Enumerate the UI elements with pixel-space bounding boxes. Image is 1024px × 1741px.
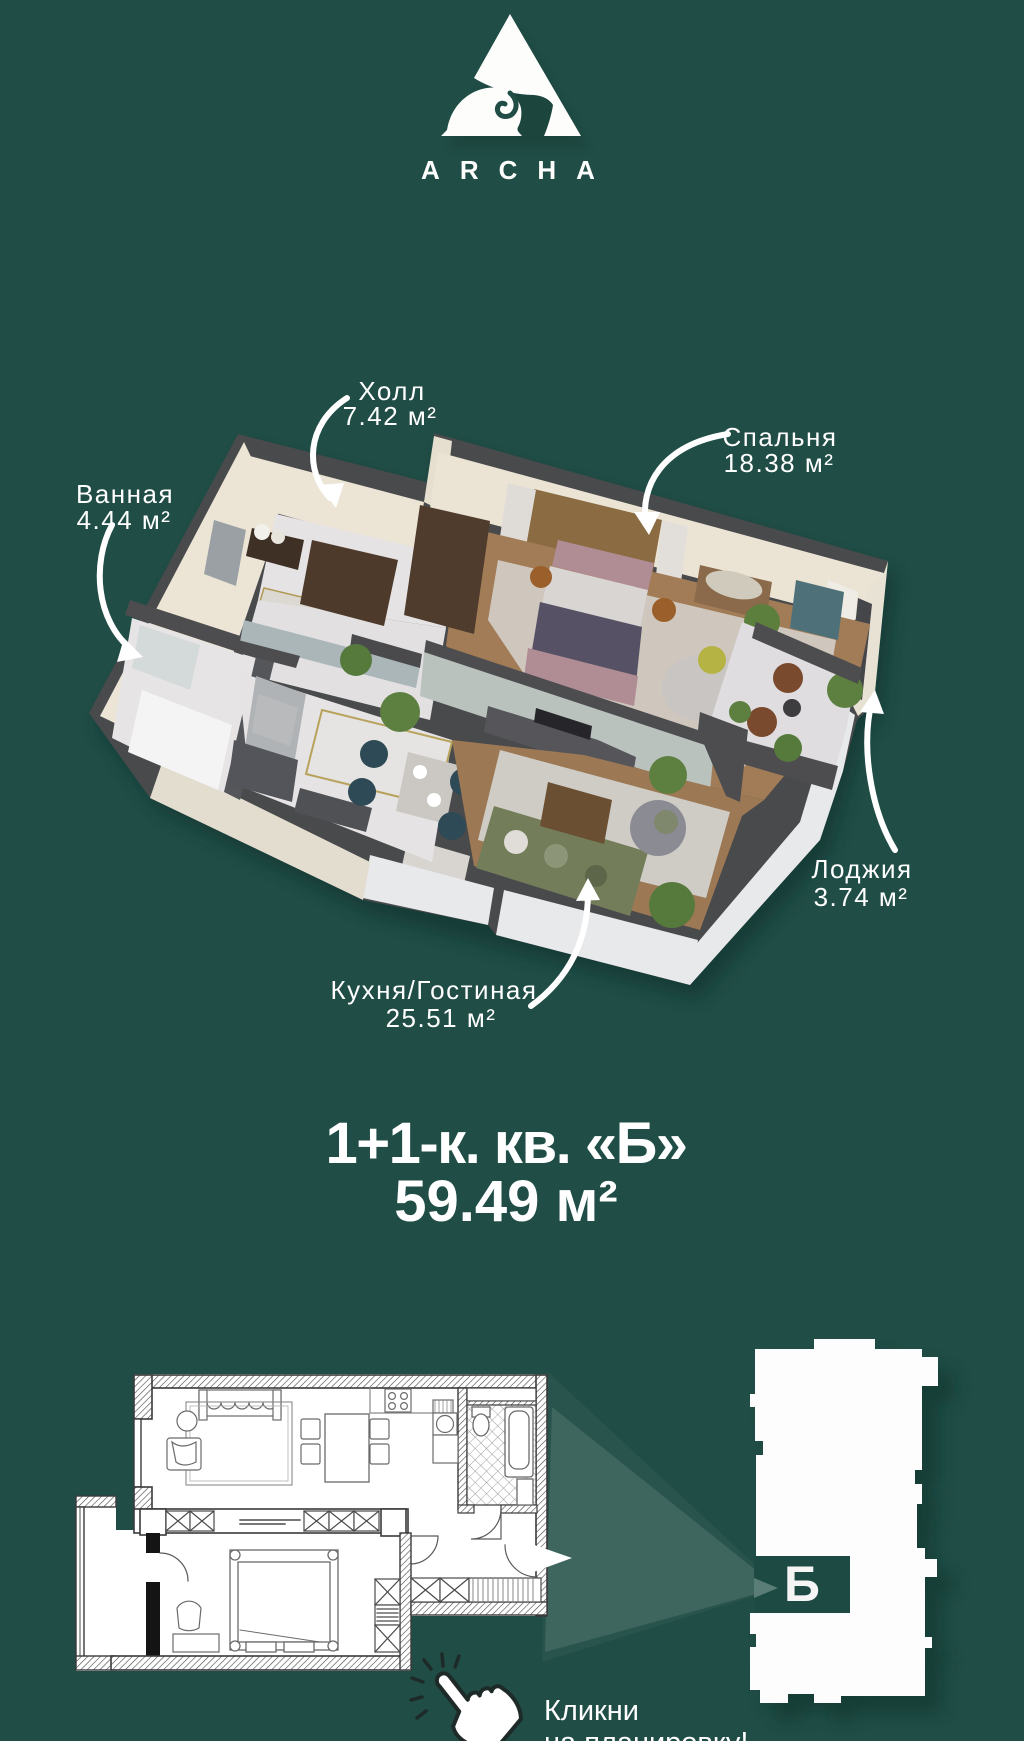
svg-text:59.49 м²: 59.49 м² xyxy=(394,1169,617,1234)
svg-text:1+1-к. кв. «Б»: 1+1-к. кв. «Б» xyxy=(325,1111,686,1176)
svg-text:ARCHA: ARCHA xyxy=(421,155,615,185)
svg-text:на планировку!: на планировку! xyxy=(544,1727,748,1741)
svg-text:Кухня/Гостиная: Кухня/Гостиная xyxy=(331,975,538,1005)
svg-text:Кликни: Кликни xyxy=(544,1695,639,1727)
svg-text:Лоджия: Лоджия xyxy=(811,854,912,884)
svg-text:4.44 м²: 4.44 м² xyxy=(77,505,172,535)
svg-text:7.42 м²: 7.42 м² xyxy=(343,401,438,431)
svg-text:25.51 м²: 25.51 м² xyxy=(386,1003,497,1033)
svg-text:Б: Б xyxy=(784,1556,820,1612)
svg-text:18.38 м²: 18.38 м² xyxy=(724,448,835,478)
svg-text:3.74 м²: 3.74 м² xyxy=(814,882,909,912)
